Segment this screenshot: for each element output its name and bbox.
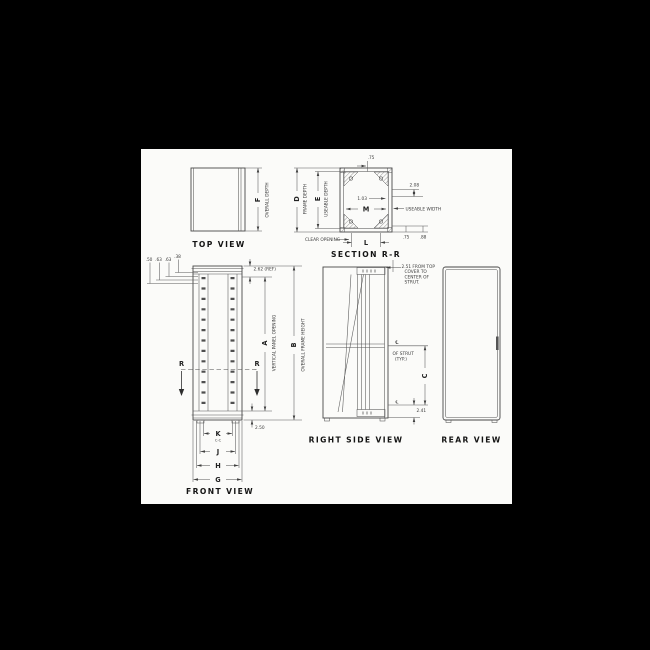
dim-2-41: 2.41	[417, 408, 427, 414]
rear-view-title: REAR VIEW	[441, 436, 501, 445]
overall-frame-height-label: OVERALL FRAME HEIGHT	[301, 318, 307, 372]
dim-2-50: 2.50	[255, 425, 265, 431]
of-strut-label: OF STRUT	[393, 351, 415, 357]
front-view-title: FRONT VIEW	[186, 487, 254, 496]
typ-label: (TYP.)	[395, 357, 407, 363]
door-handle	[496, 337, 499, 351]
dim-1-03: 1.03	[357, 196, 367, 202]
section-cut-letter-right: R	[254, 360, 259, 368]
dim-75-bottom: .75	[403, 235, 410, 241]
dim-75-top: .75	[368, 155, 375, 161]
dim-letter-m: M	[363, 206, 370, 214]
overall-depth-label: OVERALL DEPTH	[265, 182, 271, 217]
screenshot-stage: F OVERALL DEPTH TOP VIEW M 1.03 .75 2.08	[0, 0, 650, 650]
dim-letter-k: K	[215, 430, 221, 438]
section-rr-title: SECTION R-R	[331, 250, 401, 259]
dim-letter-c: C	[421, 373, 429, 378]
offset-dim-50: .50	[146, 257, 153, 263]
clear-opening-label: CLEAR OPENING	[305, 237, 340, 243]
frame-depth-label: FRAME DEPTH	[303, 184, 309, 214]
strut-note-line-3: CENTER OF	[405, 274, 430, 280]
dim-letter-f: F	[254, 198, 262, 203]
right-side-view-title: RIGHT SIDE VIEW	[309, 436, 404, 445]
ref-dim: 2.62 (REF)	[254, 267, 277, 273]
dim-letter-b: B	[290, 342, 298, 347]
dim-k-sub: C-C	[215, 439, 222, 443]
engineering-drawing: F OVERALL DEPTH TOP VIEW M 1.03 .75 2.08	[0, 0, 650, 650]
dim-2-08: 2.08	[410, 183, 420, 189]
useable-width-label: USEABLE WIDTH	[406, 207, 442, 213]
useable-depth-label: USEABLE DEPTH	[324, 181, 330, 216]
dim-letter-d: D	[293, 196, 301, 202]
dim-letter-e: E	[314, 196, 322, 201]
strut-note-line-2: COVER TO	[405, 269, 428, 275]
dim-letter-a: A	[261, 340, 269, 346]
strut-note-line-1: 2.51 FROM TOP	[402, 264, 436, 270]
dim-letter-g: G	[215, 476, 220, 484]
dim-letter-j: J	[216, 448, 219, 456]
offset-dim-63b: .63	[165, 257, 172, 263]
vertical-panel-opening-label: VERTICAL PANEL OPENING	[272, 315, 278, 372]
centerline-symbol-bottom: ℄	[396, 400, 399, 406]
top-view-title: TOP VIEW	[192, 240, 245, 249]
dim-letter-h: H	[215, 462, 221, 470]
section-cut-letter-left: R	[179, 360, 184, 368]
offset-dim-38: .38	[174, 254, 181, 260]
dim-88-bottom: .88	[420, 235, 427, 241]
offset-dim-63a: .63	[155, 257, 162, 263]
strut-note-line-4: STRUT.	[405, 280, 420, 286]
